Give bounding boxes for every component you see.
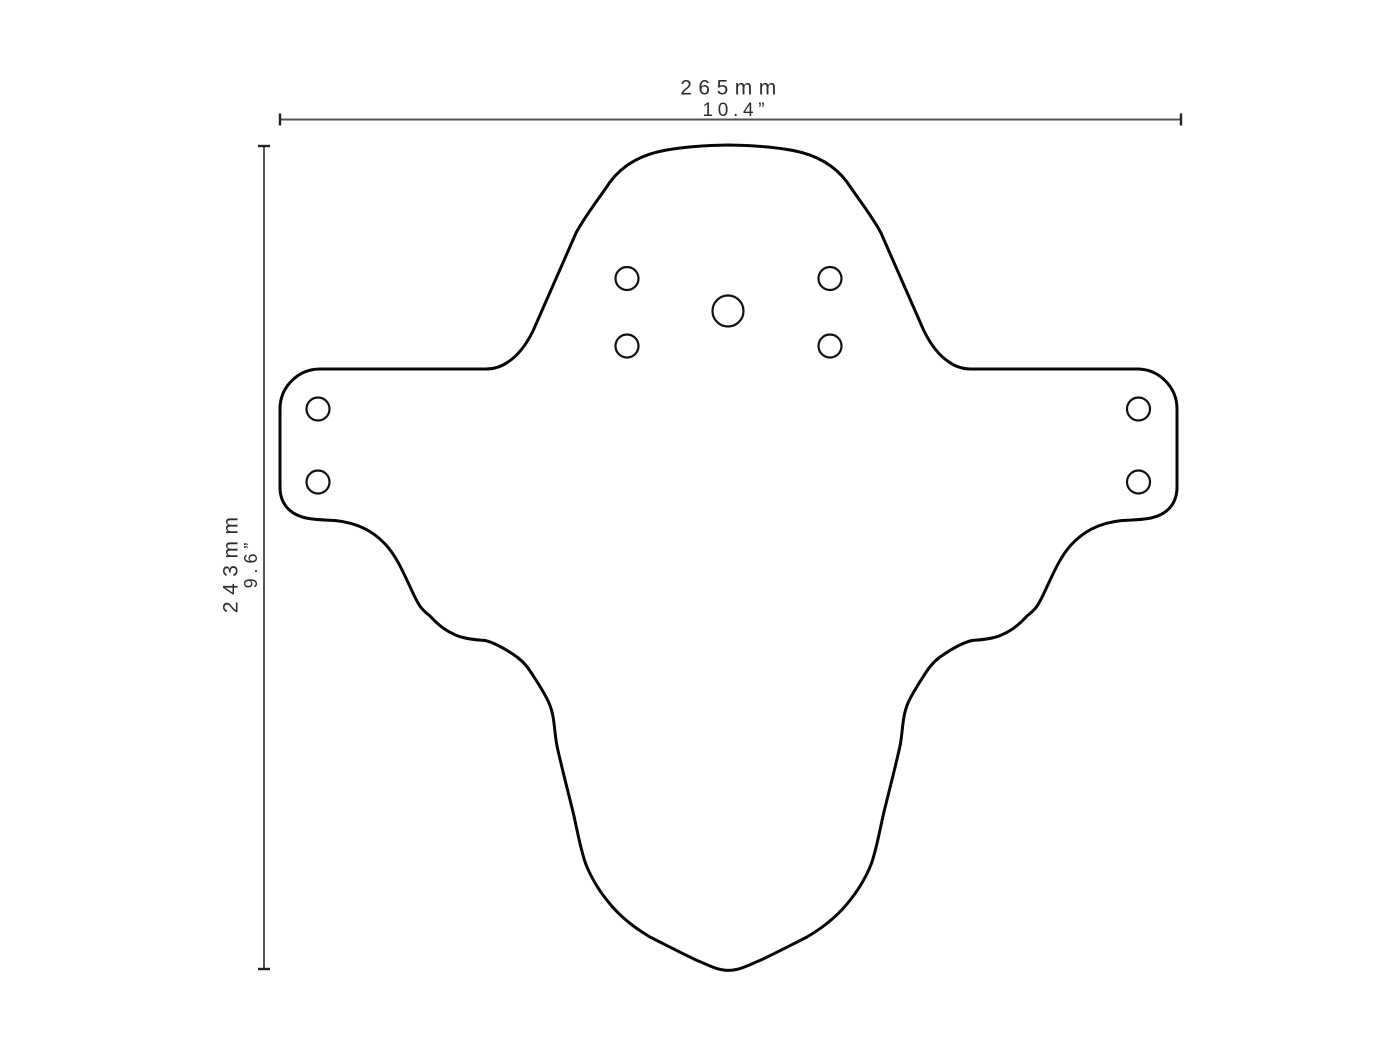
svg-text:265mm: 265mm: [680, 76, 783, 99]
svg-text:10.4”: 10.4”: [702, 100, 769, 121]
svg-text:9.6”: 9.6”: [241, 538, 261, 589]
svg-text:243mm: 243mm: [219, 511, 242, 614]
